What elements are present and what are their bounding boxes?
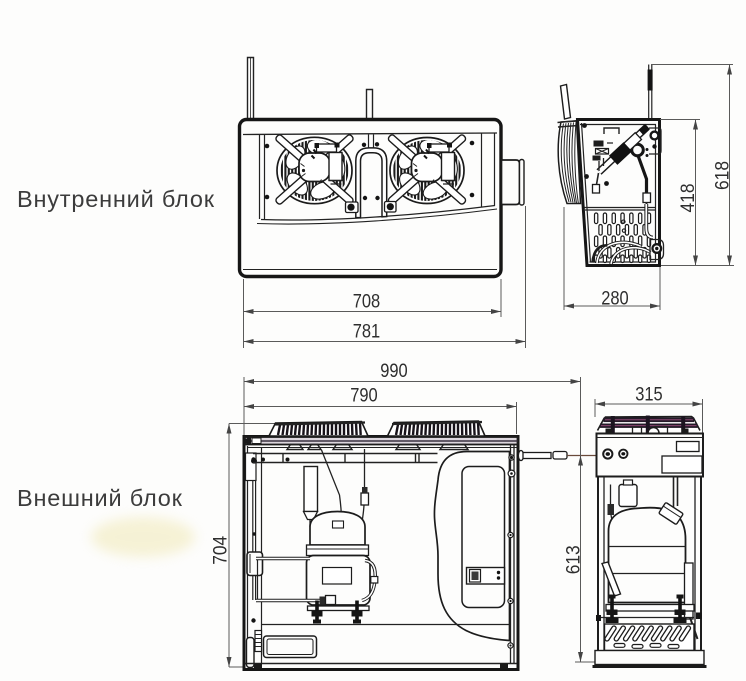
svg-text:708: 708	[353, 291, 381, 313]
svg-text:613: 613	[563, 545, 585, 574]
svg-text:Внешний блок: Внешний блок	[17, 485, 183, 511]
svg-text:Внутренний блок: Внутренний блок	[17, 186, 215, 212]
svg-text:418: 418	[677, 184, 699, 213]
svg-text:990: 990	[380, 360, 408, 382]
svg-text:280: 280	[601, 288, 629, 310]
svg-text:315: 315	[635, 384, 663, 406]
svg-text:618: 618	[712, 161, 734, 190]
svg-text:781: 781	[353, 321, 381, 343]
svg-text:790: 790	[350, 385, 378, 407]
svg-text:704: 704	[209, 536, 231, 565]
